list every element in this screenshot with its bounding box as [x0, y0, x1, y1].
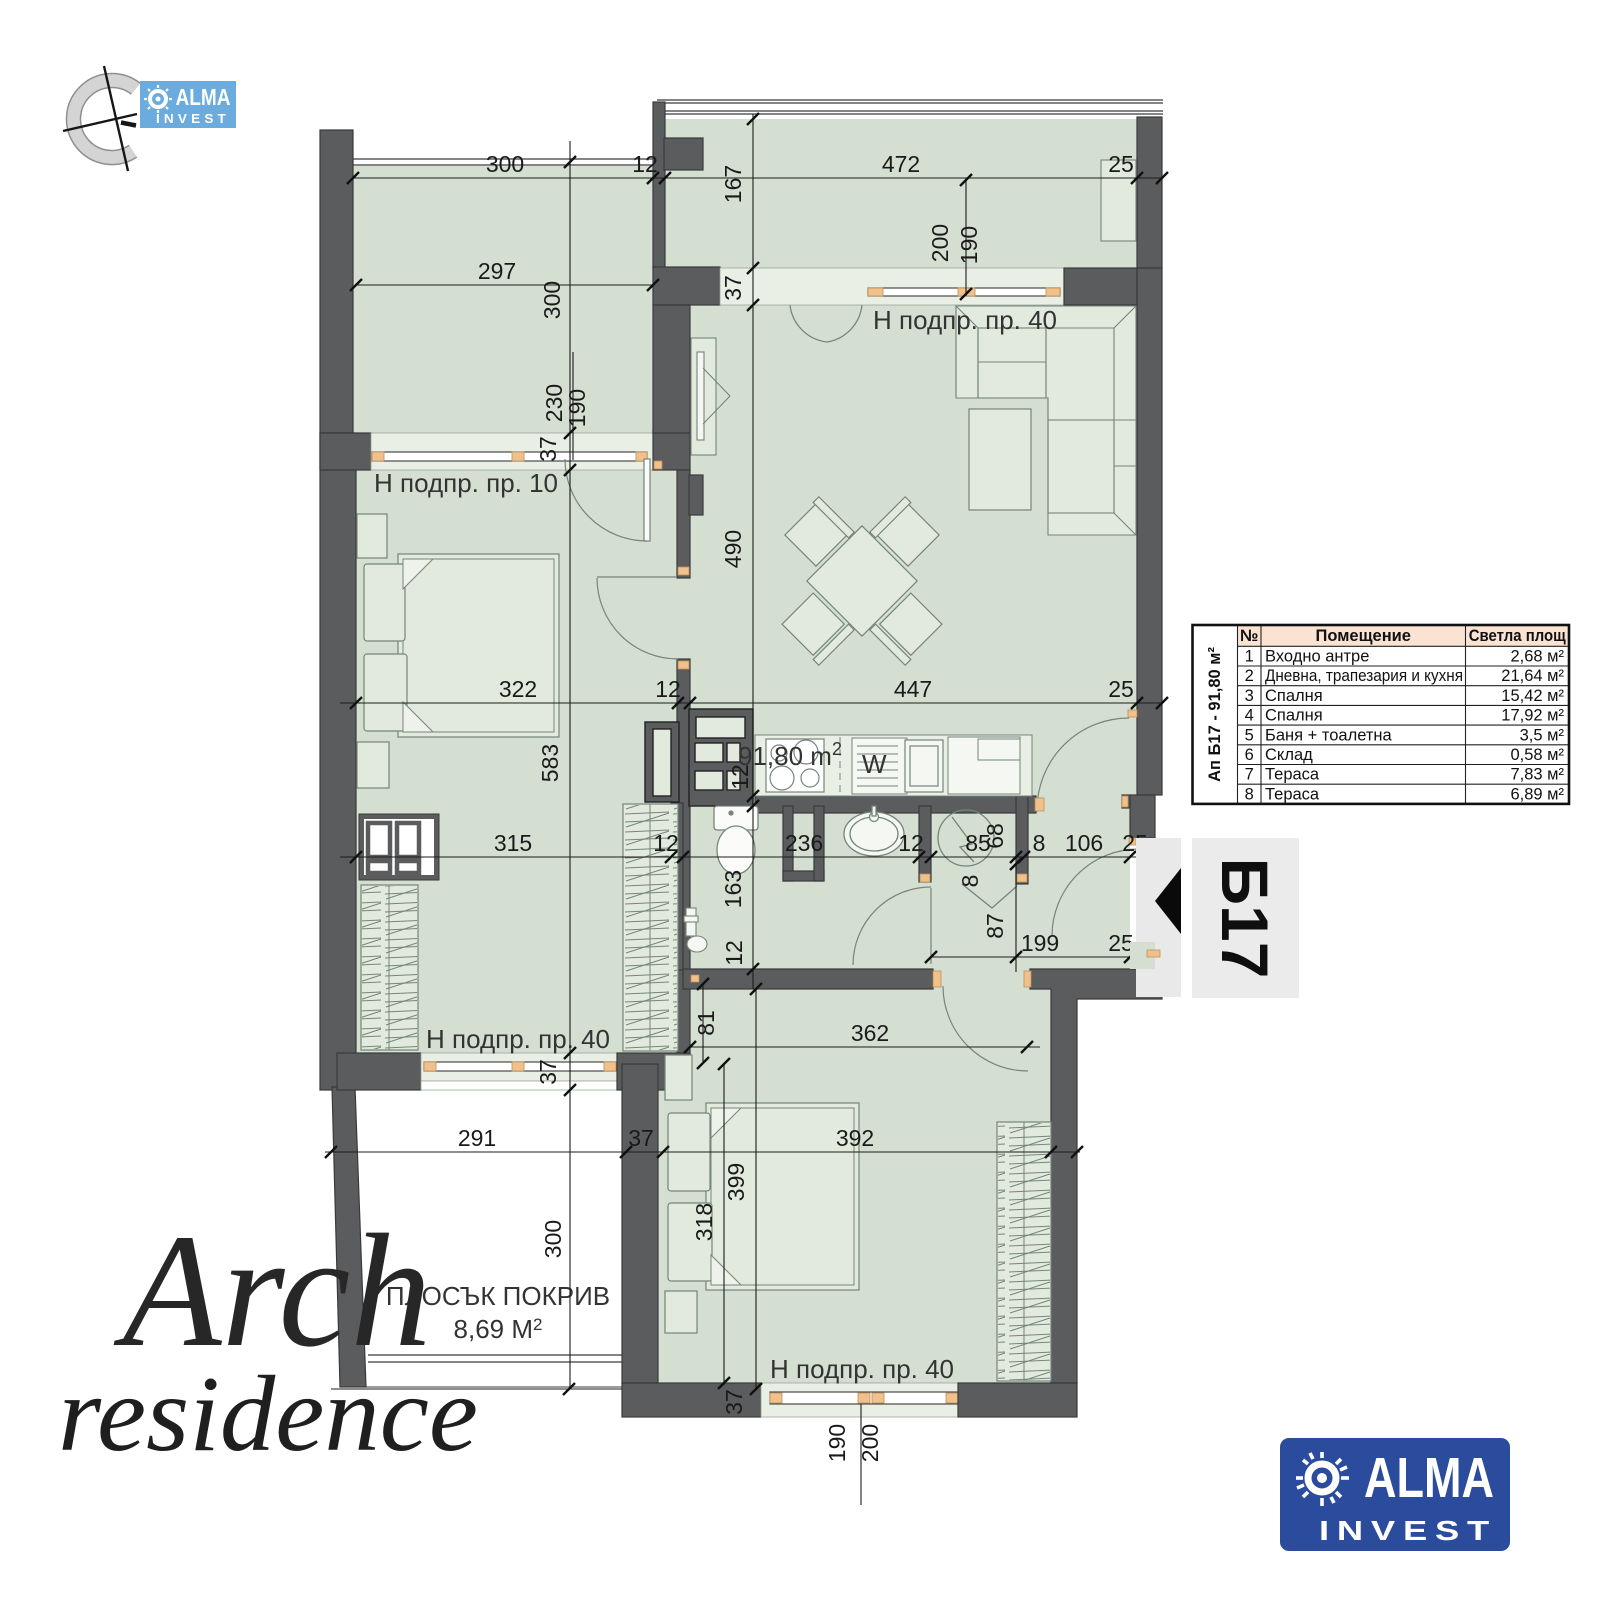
svg-text:37: 37 [628, 1125, 654, 1151]
svg-text:300: 300 [539, 281, 565, 319]
svg-text:8: 8 [957, 875, 983, 888]
svg-text:490: 490 [720, 530, 746, 568]
svg-text:7: 7 [1245, 766, 1254, 784]
svg-text:5: 5 [1245, 726, 1254, 744]
svg-text:190: 190 [564, 389, 590, 427]
svg-text:318: 318 [691, 1203, 717, 1241]
svg-text:8,69 М2: 8,69 М2 [454, 1314, 543, 1344]
svg-text:8: 8 [1033, 830, 1046, 856]
svg-text:300: 300 [540, 1220, 566, 1258]
svg-text:Спалня: Спалня [1265, 687, 1323, 705]
svg-text:17,92 м²: 17,92 м² [1501, 707, 1564, 725]
svg-text:6,89 м²: 6,89 м² [1510, 785, 1564, 803]
svg-text:25: 25 [1108, 151, 1134, 177]
svg-text:Спалня: Спалня [1265, 707, 1323, 725]
svg-text:12: 12 [632, 151, 658, 177]
svg-text:Б17: Б17 [1208, 858, 1282, 979]
svg-text:7,83 м²: 7,83 м² [1510, 766, 1564, 784]
svg-text:ALMA: ALMA [176, 84, 231, 110]
svg-text:Н подпр. пр. 40: Н подпр. пр. 40 [873, 305, 1057, 335]
svg-text:106: 106 [1065, 830, 1103, 856]
svg-text:37: 37 [720, 275, 746, 301]
svg-text:190: 190 [956, 226, 982, 264]
svg-text:Н подпр. пр. 40: Н подпр. пр. 40 [770, 1354, 954, 1384]
svg-text:Тераса: Тераса [1265, 785, 1320, 803]
svg-text:6: 6 [1245, 746, 1254, 764]
svg-text:199: 199 [1021, 930, 1059, 956]
svg-text:2: 2 [1245, 667, 1254, 685]
svg-text:297: 297 [478, 258, 516, 284]
svg-text:12: 12 [653, 830, 679, 856]
svg-text:Дневна, трапезария и кухня: Дневна, трапезария и кухня [1265, 667, 1463, 685]
svg-text:12: 12 [721, 940, 747, 966]
svg-text:200: 200 [857, 1424, 883, 1462]
svg-text:447: 447 [894, 676, 932, 702]
svg-text:68: 68 [982, 823, 1008, 849]
svg-text:4: 4 [1245, 707, 1254, 725]
svg-text:25: 25 [1108, 676, 1134, 702]
svg-text:INVEST: INVEST [1319, 1515, 1497, 1546]
svg-text:Н подпр. пр. 10: Н подпр. пр. 10 [374, 468, 558, 498]
svg-text:399: 399 [723, 1163, 749, 1201]
svg-text:81: 81 [693, 1010, 719, 1036]
svg-text:Входно антре: Входно антре [1265, 648, 1369, 666]
svg-text:300: 300 [486, 151, 524, 177]
svg-text:3: 3 [1245, 687, 1254, 705]
svg-text:Н подпр. пр. 40: Н подпр. пр. 40 [426, 1024, 610, 1054]
svg-text:392: 392 [836, 1125, 874, 1151]
svg-text:Баня + тоалетна: Баня + тоалетна [1265, 726, 1393, 744]
svg-text:residence: residence [58, 1355, 478, 1474]
svg-text:INVEST: INVEST [156, 111, 230, 126]
svg-text:3,5 м²: 3,5 м² [1520, 726, 1565, 744]
svg-text:291: 291 [458, 1125, 496, 1151]
svg-text:15,42 м²: 15,42 м² [1501, 687, 1564, 705]
svg-text:ALMA: ALMA [1364, 1446, 1494, 1510]
svg-text:Тераса: Тераса [1265, 766, 1320, 784]
svg-text:W: W [862, 749, 887, 779]
svg-text:315: 315 [494, 830, 532, 856]
svg-text:37: 37 [721, 1389, 747, 1415]
svg-text:583: 583 [537, 744, 563, 782]
svg-text:37: 37 [535, 1059, 561, 1085]
svg-text:2,68 м²: 2,68 м² [1510, 648, 1564, 666]
svg-text:Светла площ: Светла площ [1469, 627, 1566, 645]
svg-text:37: 37 [535, 436, 561, 462]
svg-text:236: 236 [785, 830, 823, 856]
svg-text:167: 167 [720, 165, 746, 203]
svg-text:21,64 м²: 21,64 м² [1501, 667, 1564, 685]
svg-text:0,58 м²: 0,58 м² [1510, 746, 1564, 764]
svg-text:Помещение: Помещение [1316, 627, 1412, 645]
svg-text:12: 12 [898, 830, 924, 856]
svg-text:12: 12 [655, 676, 681, 702]
svg-text:362: 362 [851, 1020, 889, 1046]
svg-text:190: 190 [824, 1424, 850, 1462]
svg-text:87: 87 [982, 913, 1008, 939]
svg-text:163: 163 [720, 870, 746, 908]
svg-text:25: 25 [1108, 930, 1134, 956]
svg-text:8: 8 [1245, 785, 1254, 803]
svg-text:1: 1 [1245, 648, 1254, 666]
svg-text:322: 322 [499, 676, 537, 702]
svg-text:№: № [1240, 627, 1258, 645]
svg-text:Склад: Склад [1265, 746, 1313, 764]
svg-text:472: 472 [882, 151, 920, 177]
svg-text:91,80 m2: 91,80 m2 [738, 739, 842, 771]
svg-text:Ап Б17 - 91,80 м²: Ап Б17 - 91,80 м² [1206, 646, 1224, 781]
svg-text:200: 200 [927, 224, 953, 262]
